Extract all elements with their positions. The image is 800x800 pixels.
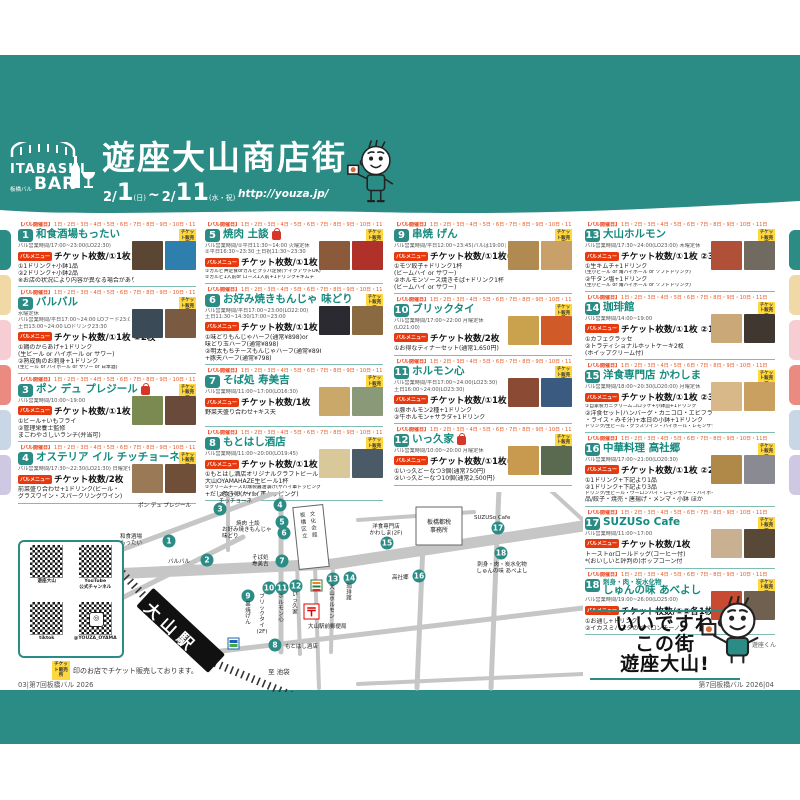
store-entry-1: 【バル開催日】1日・2日・3日・4日・5日・6日・7日・8日・9日・10日・11…	[18, 222, 196, 287]
page-title: 遊座大山商店街	[102, 141, 347, 174]
open-days-label: 【バル開催日】	[585, 436, 620, 442]
map-pin-number: 14	[345, 574, 355, 583]
store-name: バルバル	[36, 297, 78, 308]
open-days-label: 【バル開催日】	[205, 287, 240, 293]
store-number: 15	[585, 370, 600, 383]
store-entry-12: 【バル開催日】1日・2日・3日・4日・5日・6日・7日・8日・9日・10日・11…	[394, 427, 572, 486]
map-pin-number: 7	[279, 557, 284, 566]
store-photo	[711, 241, 742, 270]
side-tabs-left	[0, 230, 11, 495]
menu-item: ②ホルモンソース焼きそば+ドリンク1杯	[394, 277, 510, 284]
map-pin-number: 16	[414, 572, 424, 581]
map-pin-label-14: 珈琲館	[346, 582, 352, 602]
menu-item: ②2ドリンク+小鉢2品	[18, 270, 134, 277]
store-photo	[165, 396, 196, 425]
menu-item: *(おいしいと評判の)ポップコーン付	[585, 558, 713, 565]
bar-menu-badge: バルメニュー	[585, 324, 619, 333]
side-tabs-right	[789, 230, 800, 495]
page-footer-left: 03|第7回板橋バル 2026	[18, 679, 94, 689]
store-photos	[319, 387, 383, 416]
store-name: ポン デュ プレジール	[36, 384, 138, 395]
bar-menu-badge: バルメニュー	[394, 252, 428, 261]
bar-menu-badge: バルメニュー	[18, 475, 52, 484]
menu-item: ①1ドリンク+小鉢1品	[18, 263, 134, 270]
instagram-icon: ◎	[89, 612, 104, 627]
store-entry-9: 【バル開催日】1日・2日・3日・4日・5日・6日・7日・8日・9日・10日・11…	[394, 222, 572, 294]
store-photo	[319, 449, 350, 478]
qr-code	[79, 545, 112, 578]
hours-line: バル営業時間/17:30~22:30(LO21:30) 日曜定休	[18, 466, 130, 472]
open-days-strip: 【バル開催日】1日・2日・3日・4日・5日・6日・7日・8日・9日・10日・11…	[585, 510, 775, 516]
store-entry-5: 【バル開催日】1日・2日・3日・4日・5日・6日・7日・8日・9日・10日・11…	[205, 222, 383, 284]
post-office-label: 大山駅前郵便局	[308, 622, 347, 630]
map-pin-number: 9	[245, 592, 250, 601]
index-tab-1	[0, 230, 11, 270]
menu-item: ②1ドリンク+下記より3品	[585, 484, 713, 491]
page-footer-right: 第7回板橋バル 2026|04	[698, 679, 774, 689]
store-photos	[508, 446, 572, 475]
store-category: 刺身・肉・炭水化物	[603, 579, 701, 586]
store-name: 中華料理 高社郷	[603, 443, 680, 454]
store-number: 18	[585, 579, 600, 592]
store-name: 洋食専門店 かわしま	[603, 370, 701, 381]
hours-line: バル営業時間/17:00~21:00(LO20:30)	[585, 457, 709, 463]
store-entry-11: 【バル開催日】1日・2日・3日・4日・5日・6日・7日・8日・9日・10日・11…	[394, 359, 572, 423]
store-photo	[508, 446, 539, 475]
hours-line: バル営業時間/平日12:00~23:45(バルは19:00まで)	[394, 243, 506, 249]
hours-line: バル営業時間/14:00~19:00	[585, 316, 709, 322]
map-pin-number: 17	[493, 524, 503, 533]
event-dates: 2/1(日)~2/11(水・祝)	[103, 180, 235, 204]
store-photo	[319, 306, 350, 335]
store-name: 刺身・肉・炭水化物しゅんの味 あべよし	[603, 579, 701, 597]
menu-item: グラスワイン・スパークリングワイン)	[18, 493, 134, 500]
map-pin-label-16: 高社郷	[392, 573, 409, 581]
hours-line: バル営業時間/18:00~20:30(LO20:00) 月曜定休	[585, 384, 709, 390]
ticket-count: チケット枚数/①1枚 ②2枚	[621, 464, 722, 476]
menu-item: ①カフェクラッセ	[585, 336, 713, 343]
index-tab-4	[789, 365, 800, 405]
menu-item: ②いっ久どーなつ10個(通常2,500円)	[394, 475, 510, 482]
index-tab-5	[0, 410, 11, 450]
hours-line: 土日16:00~24:00(LO23:30)	[394, 387, 506, 393]
store-photos	[132, 464, 196, 493]
store-photo	[541, 241, 572, 270]
index-tab-6	[789, 455, 800, 495]
menu-item: (生ビール or ハイボール or サワー or 日本酒)	[18, 365, 134, 371]
map-pin-number: 13	[328, 575, 338, 584]
mascot-icon-large	[698, 596, 770, 666]
menu-item: ②熟成魚のお刺身+1ドリンク	[18, 358, 134, 365]
hours-line: バル営業時間/11:00~20:00(LO19:45)	[205, 451, 317, 457]
qr-item-4: ◎@YOUZA_OYAMA	[72, 602, 120, 653]
menu-item: ②洋食セット(ハンバーグ・カニコロ・エビフライ	[585, 410, 713, 417]
arch-icon	[10, 142, 76, 157]
open-days-label: 【バル開催日】	[18, 377, 53, 383]
store-photos	[132, 309, 196, 338]
post-mark: 〒	[305, 605, 317, 619]
map-pin-label-7: 寿美吉	[252, 560, 269, 568]
store-photo	[508, 378, 539, 407]
store-photo	[165, 241, 196, 270]
store-photo	[132, 396, 163, 425]
menu-item: ①1ドリンク+下記より1品	[585, 477, 713, 484]
store-photo	[132, 309, 163, 338]
entries-column-4: 【バル開催日】1日・2日・3日・4日・5日・6日・7日・8日・9日・10日・11…	[585, 222, 775, 638]
footer-band	[0, 690, 800, 744]
store-entry-16: 【バル開催日】1日・2日・3日・4日・5日・6日・7日・8日・9日・10日・11…	[585, 436, 775, 507]
map-pin-label-15: かわしま(2F)	[370, 530, 403, 537]
qr-code-box: 遊座大山YouTube公式チャンネルtiktok◎@YOUZA_OYAMA	[18, 540, 124, 658]
map-pin-number: 15	[382, 539, 392, 548]
hours-line: バル営業時間/平日17:00~24:00 LOフード23:00	[18, 317, 130, 323]
menu-item: 味どり玉ハーフ(通常¥898)	[205, 341, 321, 348]
hours-line: バル営業時間/11:00~17:00	[585, 531, 709, 537]
store-photos	[711, 382, 775, 411]
store-number: 7	[205, 375, 220, 388]
map-pin-label-15: 洋食専門店	[372, 522, 400, 530]
map-pin-label-10: ブリックタイ(2F)	[257, 592, 268, 635]
index-tab-2	[789, 275, 800, 315]
store-name: 大山ホルモン	[603, 229, 666, 240]
map-pin-label-17: SUZUSo Cafe	[474, 515, 511, 521]
bar-menu-badge: バルメニュー	[18, 252, 52, 261]
ticket-count: チケット枚数/1枚	[621, 538, 690, 550]
index-tab-1	[789, 230, 800, 270]
store-name: オステリア イル チッチョーネ	[36, 452, 180, 463]
store-name: 焼肉 土談	[223, 229, 269, 240]
menu-item: (ホイップクリーム付)	[585, 350, 713, 357]
tax-office	[416, 507, 462, 545]
menu-item: ※お店の状況により内容が異なる場合があります	[18, 277, 134, 284]
date-from-day: 1	[117, 180, 134, 204]
store-entry-15: 【バル開催日】1日・2日・3日・4日・5日・6日・7日・8日・9日・10日・11…	[585, 363, 775, 433]
menu-item: (ビームハイ or サワー)	[394, 270, 510, 277]
open-days-strip: 【バル開催日】1日・2日・3日・4日・5日・6日・7日・8日・9日・10日・11…	[18, 377, 196, 383]
bar-menu-badge: バルメニュー	[585, 393, 619, 402]
ticket-footnote: チケット販売所 印のお店でチケット販売しております。	[52, 661, 198, 680]
store-entry-6: 【バル開催日】1日・2日・3日・4日・5日・6日・7日・8日・9日・10日・11…	[205, 287, 383, 366]
bar-menu-badge: バルメニュー	[585, 465, 619, 474]
menu-item: ・ライス・みそ汁)+本日の小鉢+1ドリンク	[585, 417, 713, 424]
footnote-text: 印のお店でチケット販売しております。	[73, 666, 198, 676]
date-from-weekday: (日)	[134, 195, 146, 204]
store-entry-2: 【バル開催日】1日・2日・3日・4日・5日・6日・7日・8日・9日・10日・11…	[18, 290, 196, 373]
date-to-weekday: (水・祝)	[209, 195, 235, 204]
menu-item: トーストorロールドッグ(コーヒー付)	[585, 551, 713, 558]
hours-line: (LO21:00)	[394, 325, 506, 331]
hours-line: バル営業時間/17:00~23:00(LO22:30)	[18, 243, 130, 249]
date-from-month: 2/	[103, 191, 117, 204]
hours-line: バル営業時間/10:00~19:00	[18, 398, 130, 404]
ticket-count: チケット枚数/①1枚 ②3枚	[621, 250, 722, 262]
bar-menu-badge: バルメニュー	[205, 398, 239, 407]
bar-menu-badge: バルメニュー	[205, 322, 239, 331]
menu-item: ①お得なディナーセット(通常1,650円)	[394, 345, 510, 352]
store-name: もとはし酒店	[223, 437, 286, 448]
store-photos	[132, 396, 196, 425]
open-days-strip: 【バル開催日】1日・2日・3日・4日・5日・6日・7日・8日・9日・10日・11…	[394, 427, 572, 433]
qr-label: 遊座大山	[38, 579, 56, 585]
store-photos	[319, 241, 383, 270]
hours-line: 土日13:00~24:00 LOドリンク23:30	[18, 324, 130, 330]
hours-line: 土日11:30~14:30/17:00~23:00	[205, 314, 317, 320]
store-number: 16	[585, 443, 600, 456]
store-photo	[319, 387, 350, 416]
bar-menu-badge: バルメニュー	[394, 333, 428, 342]
open-days-strip: 【バル開催日】1日・2日・3日・4日・5日・6日・7日・8日・9日・10日・11…	[205, 287, 383, 293]
store-number: 13	[585, 229, 600, 242]
map-pin-number: 2	[204, 556, 209, 565]
map-pin-label-6: 味どり	[222, 532, 239, 540]
map-pin-label-4: オステリアイル	[219, 492, 258, 498]
qr-item-2: YouTube公式チャンネル	[72, 545, 120, 601]
index-tab-2	[0, 275, 11, 315]
store-name: SUZUSo Cafe	[603, 517, 680, 528]
menu-item: 品/餃子・焼売・唐揚げ・メンマ・小鉢 ほか	[585, 496, 713, 503]
store-photo	[711, 455, 742, 484]
store-photo	[508, 316, 539, 345]
menu-item: ②カルビ1人前or ロース1人前+1ドリンク+キムチ	[205, 275, 321, 281]
store-photo	[352, 387, 383, 416]
store-photos	[508, 241, 572, 270]
store-photos	[711, 529, 775, 558]
menu-item: (ビームハイ or サワー)	[394, 284, 510, 291]
bar-menu-badge: バルメニュー	[18, 406, 52, 415]
bar-menu-badge: バルメニュー	[205, 258, 239, 267]
site-url: http://youza.jp/	[238, 188, 329, 200]
store-photo	[711, 314, 742, 343]
menu-item: ②管理栄養士監修	[18, 425, 134, 432]
store-photos	[711, 241, 775, 270]
store-number: 17	[585, 517, 600, 530]
store-photo	[744, 529, 775, 558]
menu-item: ①味どりもんじゃハーフ(通常¥898)or	[205, 334, 321, 341]
store-photo	[165, 309, 196, 338]
date-to-month: 2/	[162, 191, 176, 204]
index-tab-3	[789, 320, 800, 360]
menu-item: ②牛タン塩+1ドリンク	[585, 276, 713, 283]
map-pin-number: 12	[291, 582, 301, 591]
hours-line: バル営業時間/平日17:00~23:00(LO22:00)	[205, 308, 317, 314]
map-pin-label-8: もとはし酒店	[285, 642, 318, 650]
ticket-count: チケット枚数/①1枚 ②3枚	[621, 391, 722, 403]
store-number: 6	[205, 294, 220, 307]
map-pin-label-18: 刺身・肉・炭水化物	[477, 560, 527, 568]
open-days-label: 【バル開催日】	[585, 510, 620, 516]
hours-line: バル営業時間/17:30~24:00(LO23:00) 木曜定休	[585, 243, 709, 249]
qr-item-3: tiktok	[23, 602, 71, 653]
store-number: 3	[18, 384, 33, 397]
hours-line: バル営業時間/11:00~17:00(LO16:30)	[205, 389, 317, 395]
map-pin-label-3: ポン デュ プレジール	[138, 501, 191, 509]
menu-item: ①鶏のからあげ+1ドリンク	[18, 344, 134, 351]
ticket-count: チケット枚数/1枚	[241, 396, 310, 408]
bar-menu-badge: バルメニュー	[205, 460, 239, 469]
store-photos	[711, 455, 775, 484]
store-number: 14	[585, 302, 600, 315]
menu-item: 大山OYAMAHAZE生ビール1杯	[205, 478, 321, 485]
qr-label: @YOUZA_OYAMA	[74, 636, 117, 642]
hours-line: バル営業時間/10:00~20:00 月曜定休	[394, 448, 506, 454]
store-number: 1	[18, 229, 33, 242]
store-photo	[541, 446, 572, 475]
menu-item: ①生キムチ+1ドリンク	[585, 263, 713, 270]
to-ikebukuro-label: 至 池袋	[268, 667, 290, 676]
map-pin-label-2: バルバル	[168, 558, 191, 565]
store-number: 2	[18, 297, 33, 310]
qr-item-1: 遊座大山	[23, 545, 71, 601]
date-to-day: 11	[176, 180, 209, 204]
store-photo	[744, 314, 775, 343]
store-name: いっ久家	[412, 434, 454, 445]
map-pin-number: 11	[277, 584, 287, 593]
hours-line: ②平日16:30~23:30 土日祝11:30~23:30	[205, 249, 317, 255]
map-pin-label-7: そば処	[252, 553, 269, 561]
store-entry-17: 【バル開催日】1日・2日・3日・4日・5日・6日・7日・8日・9日・10日・11…	[585, 510, 775, 569]
open-days-label: 【バル開催日】	[585, 295, 620, 301]
map-pin-number: 18	[496, 549, 506, 558]
store-number: 11	[394, 366, 409, 379]
menu-item: ①もとはし酒店オリジナルクラフトビール	[205, 471, 321, 478]
store-number: 8	[205, 437, 220, 450]
index-tab-6	[0, 455, 11, 495]
store-name: ブリックタイ	[412, 304, 475, 315]
qr-label: tiktok	[39, 636, 54, 642]
store-name: ホルモン心	[412, 366, 465, 377]
store-photo	[744, 241, 775, 270]
store-name: 珈琲館	[603, 302, 635, 313]
open-days-label: 【バル開催日】	[585, 572, 620, 578]
qr-code: ◎	[79, 602, 112, 635]
store-number: 10	[394, 304, 409, 317]
bar-menu-badge: バルメニュー	[18, 332, 52, 341]
map-pin-label-4: チッチョーネ	[219, 498, 253, 505]
menu-item: ②牛ホルモン+サラダ+1ドリンク	[394, 414, 510, 421]
store-number: 5	[205, 229, 220, 242]
store-entry-3: 【バル開催日】1日・2日・3日・4日・5日・6日・7日・8日・9日・10日・11…	[18, 377, 196, 442]
logo-text-itabashi-bar-jp: 板橋バル	[10, 188, 32, 194]
map-pin-label-1: 和食酒場	[120, 532, 143, 540]
map-pin-label-11: ホルモン心	[278, 593, 284, 623]
open-days-strip: 【バル開催日】1日・2日・3日・4日・5日・6日・7日・8日・9日・10日・11…	[585, 436, 775, 442]
store-photos	[508, 316, 572, 345]
map-pin-label-13: 大山ホルモン	[329, 583, 335, 620]
menu-item: ②明太もちチーズもんじゃハーフ(通常¥898)	[205, 348, 321, 355]
menu-item: ①豚ホルモン2種+1ドリンク	[394, 407, 510, 414]
map-pin-number: 1	[166, 537, 171, 546]
store-photo	[541, 378, 572, 407]
store-photo	[711, 382, 742, 411]
store-photos	[319, 449, 383, 478]
menu-item: (生小ビール or 角ハイボール or ソフトドリンク)	[585, 283, 713, 289]
store-photos	[132, 241, 196, 270]
mascot-icon	[344, 140, 402, 210]
qr-code	[30, 545, 63, 578]
tax-office-label: 板橋都税	[427, 518, 451, 526]
open-days-strip: 【バル開催日】1日・2日・3日・4日・5日・6日・7日・8日・9日・10日・11…	[585, 572, 775, 578]
bar-menu-badge: バルメニュー	[585, 539, 619, 548]
menu-item: (生ビール or ハイボール or サワー)	[18, 351, 134, 358]
menu-item: 野菜天盛り合わせ+キス天	[205, 409, 321, 416]
map-pin-label-18: しゅんの味 あべよし	[476, 567, 527, 575]
takeout-icon	[141, 386, 150, 395]
map-pin-number: 8	[272, 641, 277, 650]
menu-item: ①自家製カニクリームコロッケ+小鉢皿+1ドリンク	[585, 404, 713, 410]
store-entry-13: 【バル開催日】1日・2日・3日・4日・5日・6日・7日・8日・9日・10日・11…	[585, 222, 775, 292]
store-name: そば処 寿美吉	[223, 375, 290, 386]
store-entry-8: 【バル開催日】1日・2日・3日・4日・5日・6日・7日・8日・9日・10日・11…	[205, 430, 383, 501]
store-photo	[711, 529, 742, 558]
store-photos	[319, 306, 383, 335]
store-number: 12	[394, 434, 409, 447]
store-photo	[352, 241, 383, 270]
index-tab-5	[789, 410, 800, 450]
entries-column-1: 【バル開催日】1日・2日・3日・4日・5日・6日・7日・8日・9日・10日・11…	[18, 222, 196, 507]
qr-code	[30, 602, 63, 635]
entries-column-3: 【バル開催日】1日・2日・3日・4日・5日・6日・7日・8日・9日・10日・11…	[394, 222, 572, 489]
menu-item: ②トラディショナルホットケーキ2枚	[585, 343, 713, 350]
store-photo	[352, 449, 383, 478]
itabashi-bar-logo: ITABASHI 板橋バル BAR	[10, 142, 98, 200]
store-name: 串焼 げん	[412, 229, 458, 240]
map-pin-number: 3	[217, 505, 222, 514]
takeout-icon	[272, 231, 281, 240]
store-photo	[132, 241, 163, 270]
store-photo	[541, 316, 572, 345]
bar-menu-badge: バルメニュー	[585, 252, 619, 261]
map-pin-number: 10	[264, 584, 274, 593]
map-pin-label-6: お好み焼きもんじゃ	[222, 525, 272, 533]
menu-item: ①ビール+いもフライ	[18, 418, 134, 425]
store-photo	[352, 306, 383, 335]
mascot-name-label: 遊座くん	[752, 640, 776, 649]
open-days-strip: 【バル開催日】1日・2日・3日・4日・5日・6日・7日・8日・9日・10日・11…	[585, 295, 775, 301]
tax-office-label: 事務所	[430, 526, 448, 534]
menu-item: ①モツ餃子+ドリンク1杯	[394, 263, 510, 270]
map-pin-number: 4	[277, 501, 282, 510]
map-pin-label-5: 焼肉 土談	[236, 519, 260, 527]
bottle-glass-icon	[68, 156, 96, 190]
ticket-count: チケット枚数/①1枚 ②1枚	[621, 323, 722, 335]
menu-item: +豚天ハーフ(通常¥798)	[205, 355, 321, 362]
map-pin-label-12: いっ久家	[292, 591, 298, 615]
store-entry-7: 【バル開催日】1日・2日・3日・4日・5日・6日・7日・8日・9日・10日・11…	[205, 368, 383, 427]
ticket-count: チケット枚数/2枚	[54, 473, 123, 485]
store-photo	[744, 382, 775, 411]
index-tab-4	[0, 365, 11, 405]
store-photo	[165, 464, 196, 493]
store-photo	[319, 241, 350, 270]
hours-line: バル営業時間/19:00~26:00(LO25:00)	[585, 597, 709, 603]
map-pin-label-9: 串焼げん	[245, 601, 251, 625]
store-photo	[744, 455, 775, 484]
qr-label: YouTube公式チャンネル	[79, 579, 111, 590]
store-name: 和食酒場もったい	[36, 229, 120, 240]
store-entry-10: 【バル開催日】1日・2日・3日・4日・5日・6日・7日・8日・9日・10日・11…	[394, 297, 572, 356]
store-name: お好み焼きもんじゃ 味どり	[223, 294, 353, 305]
familymart-icon	[228, 638, 239, 649]
store-photo	[132, 464, 163, 493]
store-number: 9	[394, 229, 409, 242]
ticket-count: チケット枚数/2枚	[430, 332, 499, 344]
store-number: 4	[18, 452, 33, 465]
store-photos	[508, 378, 572, 407]
ticket-sale-badge: チケット販売所	[52, 661, 70, 680]
takeout-icon	[457, 436, 466, 445]
store-photos	[711, 314, 775, 343]
index-tab-3	[0, 320, 11, 360]
